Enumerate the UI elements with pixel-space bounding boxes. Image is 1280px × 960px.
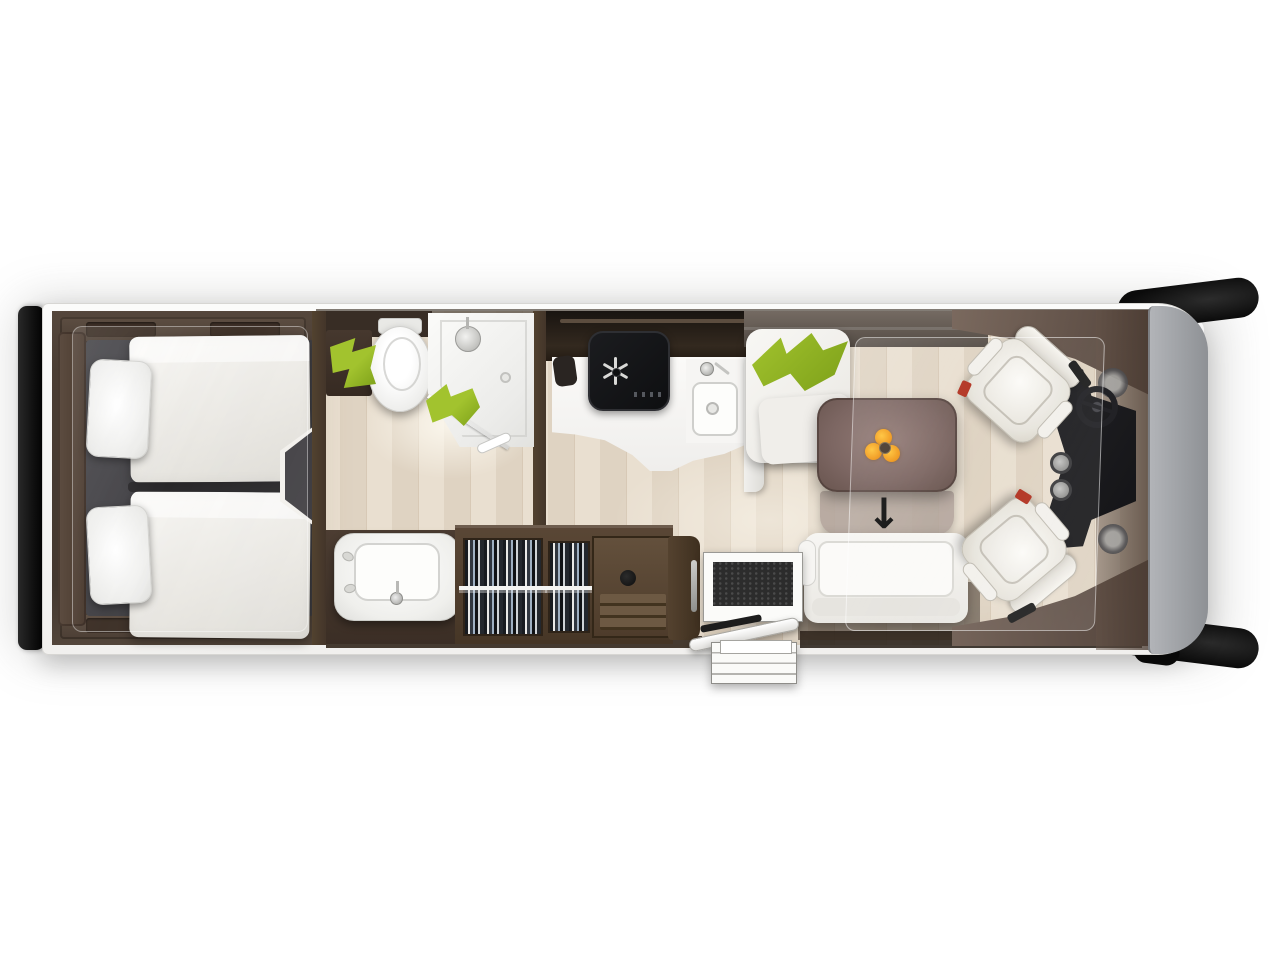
doormat <box>703 552 803 622</box>
bedroom-glass-overlay <box>72 326 308 632</box>
shower-head-icon <box>455 326 481 352</box>
partition-wall-kitchen <box>533 311 546 549</box>
motorhome-floorplan: ↓ <box>0 0 1280 960</box>
front-cap <box>1148 306 1208 654</box>
counter-item <box>552 355 578 388</box>
cooktop-knobs <box>634 392 664 397</box>
clothes-rail <box>545 586 593 590</box>
entry-side-cabinet <box>668 536 700 640</box>
entry-steps <box>711 642 797 684</box>
rear-bumper <box>18 306 45 650</box>
drawer-unit <box>592 536 672 638</box>
kitchen-faucet-icon <box>700 362 714 376</box>
toilet <box>368 326 432 412</box>
sink-drain <box>706 402 719 415</box>
washbasin-faucet-icon <box>390 592 403 605</box>
partition-wall-bedroom <box>312 311 326 645</box>
front-wheel-bottom <box>1098 524 1128 554</box>
burner-icon <box>600 356 630 386</box>
shower-drain <box>500 372 511 383</box>
drop-down-bed-outline <box>845 337 1105 631</box>
drawer-handle-icon <box>620 570 636 586</box>
clothes-rail <box>459 586 547 590</box>
